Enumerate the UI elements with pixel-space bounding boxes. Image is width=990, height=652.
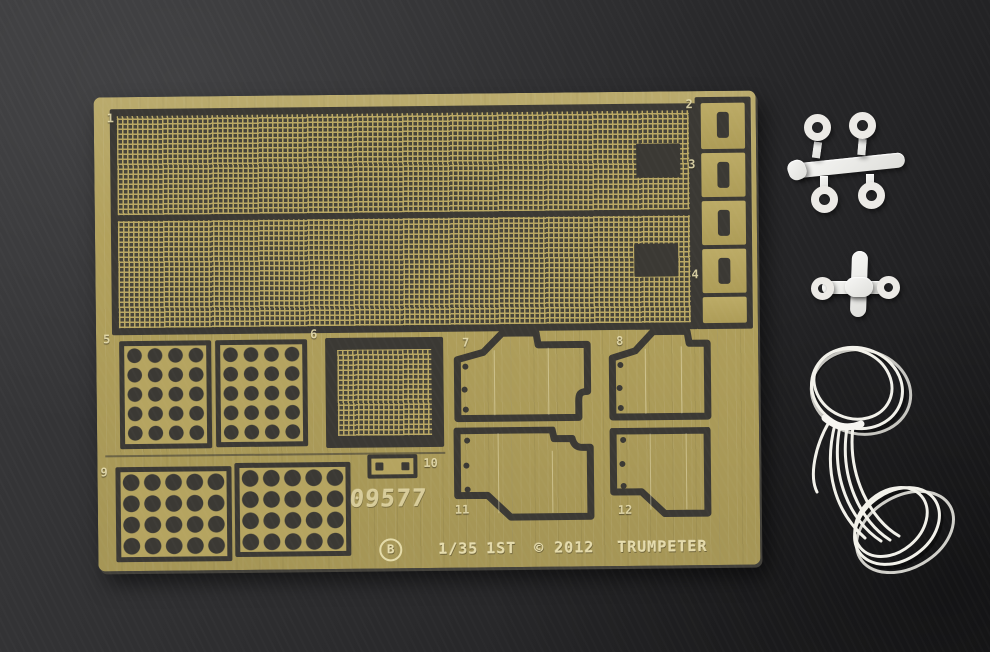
part-9-perforated-plate: [115, 466, 232, 562]
part-3-slot: [718, 210, 730, 236]
parts-2-3-4-strip: [695, 97, 753, 330]
part-6-mesh-panel-frame: [325, 337, 444, 448]
sprue-stem: [812, 142, 822, 159]
part-3-slot: [717, 162, 729, 188]
eyelet-ring: [877, 276, 900, 299]
part-1-grille-frame: [110, 103, 698, 335]
part-label-2: 2: [686, 97, 693, 111]
eyelet-ring: [858, 182, 885, 209]
part-11-panel: [452, 426, 597, 524]
part-4-bracket: [702, 249, 746, 293]
part-1-upper-cutout: [636, 143, 680, 177]
part-10-hole: [401, 462, 409, 470]
eyelet-ring: [811, 277, 834, 300]
part-5-perforated-plate: [215, 339, 308, 447]
part-label-6: 6: [310, 327, 317, 341]
eyelet-ring: [804, 114, 831, 141]
part-label-5: 5: [103, 332, 110, 346]
part-5-holes: [220, 344, 303, 442]
photo-of-model-kit-parts: 1 2 3 4 5 6 7: [0, 0, 990, 652]
part-4-slot: [718, 258, 730, 284]
part-7-panel: [452, 329, 593, 426]
copyright-text: © 2012: [534, 538, 594, 557]
part-10-bracket: [367, 454, 417, 479]
part-1-lower-cutout: [634, 243, 678, 276]
part-label-11: 11: [455, 503, 470, 517]
part-9-holes: [120, 471, 227, 557]
sprue-runner-end: [785, 158, 809, 183]
part-label-9: 9: [100, 465, 107, 479]
part-3-bracket: [701, 153, 745, 197]
part-label-7: 7: [462, 336, 469, 350]
part-10-hole: [375, 462, 383, 470]
part-4-bracket-plain: [703, 297, 747, 323]
fret-code-text: 09577: [348, 484, 428, 513]
part-label-3: 3: [688, 157, 695, 171]
part-label-4: 4: [691, 267, 698, 281]
part-6-mesh: [337, 349, 432, 436]
scale-text: 1/35: [438, 539, 478, 557]
part-9-perforated-plate: [234, 462, 351, 557]
part-5-perforated-plate: [119, 340, 212, 449]
sprue-stem: [857, 139, 866, 156]
part-1-mesh-upper: [117, 110, 690, 215]
part-label-10: 10: [423, 456, 438, 470]
part-label-8: 8: [616, 334, 623, 348]
sprue-runner: [791, 152, 906, 179]
part-10-face: [371, 458, 413, 474]
part-1-mesh-lower: [118, 215, 691, 328]
brand-text: TRUMPETER: [617, 537, 707, 556]
part-5-holes: [124, 345, 207, 444]
part-3-bracket: [702, 201, 746, 245]
part-label-12: 12: [618, 503, 633, 517]
sprue-center-bulge: [845, 277, 873, 297]
part-9-holes: [239, 467, 346, 552]
photo-etch-brass-fret: 1 2 3 4 5 6 7: [94, 91, 761, 572]
part-2-bracket: [701, 103, 745, 149]
part-label-1: 1: [107, 111, 114, 125]
eyelet-ring: [811, 186, 838, 213]
fret-letter-badge: B: [379, 538, 402, 561]
part-2-slot: [717, 112, 729, 138]
eyelet-ring: [849, 112, 876, 139]
tow-cable-string: [795, 326, 990, 578]
variant-text: 1ST: [486, 539, 516, 557]
